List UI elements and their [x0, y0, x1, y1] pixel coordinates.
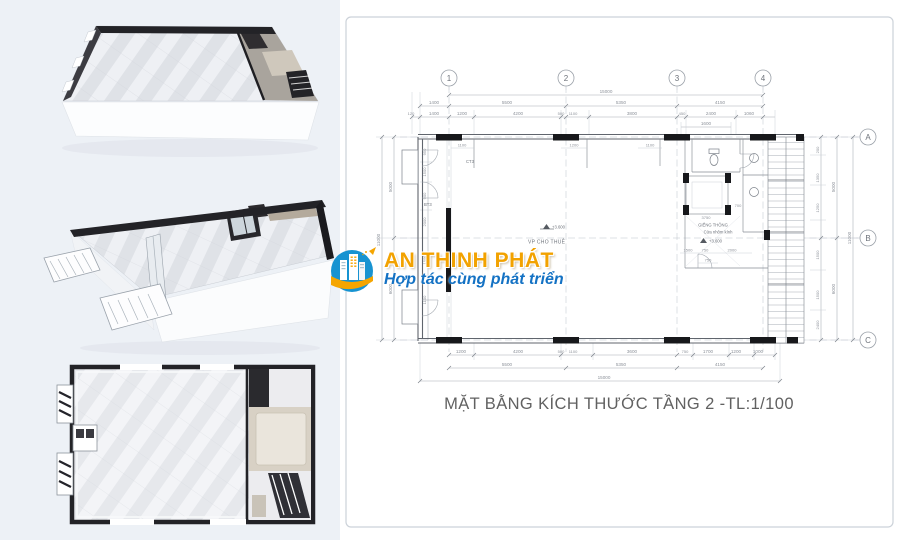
- dim: 700: [735, 203, 742, 208]
- dim: 4150: [715, 100, 726, 105]
- dim: 750: [705, 258, 712, 263]
- dim: 450: [679, 111, 686, 116]
- dim: 1000: [753, 349, 764, 354]
- dim: 6000: [831, 283, 836, 294]
- brand-name: AN THINH PHÁT: [384, 250, 564, 272]
- balcony-left-upper: [402, 150, 418, 184]
- dim: 1400: [429, 100, 440, 105]
- dim: 4200: [513, 349, 524, 354]
- floor-3d-render-middle: [0, 172, 340, 357]
- grid-row-b: B: [865, 234, 870, 243]
- grid-col-4: 4: [761, 74, 766, 83]
- floor-3d-render-bottom: [0, 355, 340, 540]
- dim: 950: [422, 148, 427, 155]
- toilet: [710, 155, 718, 166]
- dim: 1500: [815, 250, 820, 260]
- dim: 1400: [429, 111, 440, 116]
- grid-col-2: 2: [564, 74, 569, 83]
- grid-col-3: 3: [675, 74, 680, 83]
- columns: [436, 134, 804, 344]
- dim: 1350: [815, 173, 820, 183]
- dim: 1100: [569, 349, 578, 354]
- dim: 1250: [815, 203, 820, 213]
- dim: 3800: [627, 111, 638, 116]
- dim: 1200: [570, 143, 580, 148]
- watermark: AN THINH PHÁT Hợp tác cùng phát triển: [329, 245, 564, 297]
- render1-group: [62, 26, 319, 157]
- dim: 1060: [744, 111, 755, 116]
- dim: 2000: [728, 248, 738, 253]
- render2-group: [44, 200, 334, 355]
- dim: 200: [815, 146, 820, 153]
- dim: 2400: [706, 111, 717, 116]
- dim: 1100: [458, 143, 467, 148]
- brand-logo-icon: [329, 245, 377, 297]
- dim: 1200: [457, 111, 468, 116]
- fixtures: [402, 149, 759, 324]
- dim: 1500: [684, 248, 694, 253]
- dim: 750: [702, 248, 709, 253]
- dim: 5000: [388, 181, 393, 192]
- dim: 900: [422, 192, 427, 199]
- dim: 500: [558, 349, 565, 354]
- dim: 5350: [616, 100, 627, 105]
- plan-title: MẶT BẰNG KÍCH THƯỚC TẦNG 2 -TL:1/100: [444, 394, 794, 413]
- room-labels: +3.600 VP CHO THUÊ +3.600 GIẾNG THÔNG Cử…: [424, 159, 733, 246]
- grid-col-1: 1: [447, 74, 452, 83]
- dim: 1600: [701, 121, 712, 126]
- dim: 5500: [502, 362, 513, 367]
- dim: 1200: [456, 349, 467, 354]
- brand-text-block: AN THINH PHÁT Hợp tác cùng phát triển: [384, 250, 564, 288]
- dim: 1500: [422, 167, 427, 177]
- grid-bubbles: 1 2 3 4 A B C: [441, 70, 876, 348]
- dim: 500: [558, 111, 565, 116]
- brand-tagline: Hợp tác cùng phát triển: [384, 272, 564, 289]
- dim: 750: [682, 349, 689, 354]
- dim: 2000: [422, 217, 427, 227]
- dim: 1500: [815, 290, 820, 300]
- dim: 1200: [731, 349, 742, 354]
- renders-panel: [0, 0, 340, 540]
- door-tag-ct3: CT3: [466, 159, 475, 164]
- level-label-core: +3.600: [709, 239, 723, 244]
- render3-group: [57, 364, 313, 525]
- toilet-tank: [709, 149, 719, 154]
- dim: 5350: [616, 362, 627, 367]
- washbasin-2: [750, 188, 759, 197]
- grid-row-c: C: [865, 336, 871, 345]
- dim: 3600: [627, 349, 638, 354]
- dim: 1700: [703, 349, 714, 354]
- floor-3d-render-top: [0, 0, 340, 175]
- dim: 1100: [569, 111, 578, 116]
- dim: 5500: [502, 100, 513, 105]
- dim: 2400: [815, 320, 820, 330]
- dim: 3750: [702, 215, 712, 220]
- dim-top-total: 15000: [600, 89, 613, 94]
- dim: 120: [408, 111, 415, 116]
- core-label-2: Cửa nhôm kính: [704, 230, 734, 235]
- dim: 1100: [646, 143, 655, 148]
- screenshot-canvas: 1 2 3 4 A B C 15000 1400 5500 5350 4150 …: [0, 0, 900, 540]
- dim: 4150: [715, 362, 726, 367]
- walls: [418, 134, 804, 344]
- dim: 4200: [513, 111, 524, 116]
- level-label: +3.600: [552, 225, 566, 230]
- dim-bottom-total: 15000: [598, 375, 611, 380]
- grid-row-a: A: [865, 133, 871, 142]
- door-tag-bt3: BT3: [424, 202, 432, 207]
- dim-right-total: 11000: [847, 231, 852, 244]
- dim: 5000: [831, 181, 836, 192]
- core-label-1: GIẾNG THÔNG: [698, 223, 728, 228]
